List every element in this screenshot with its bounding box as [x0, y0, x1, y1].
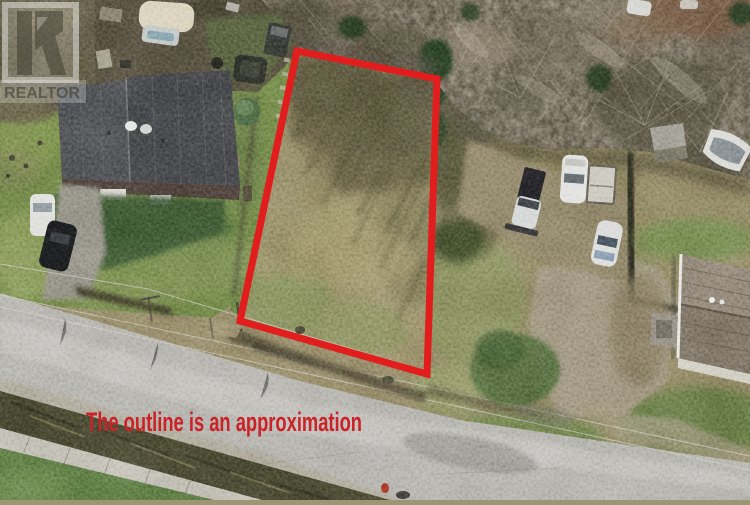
svg-text:REALTOR: REALTOR — [4, 85, 80, 102]
svg-text:The outline is an approximatio: The outline is an approximation — [86, 407, 362, 437]
